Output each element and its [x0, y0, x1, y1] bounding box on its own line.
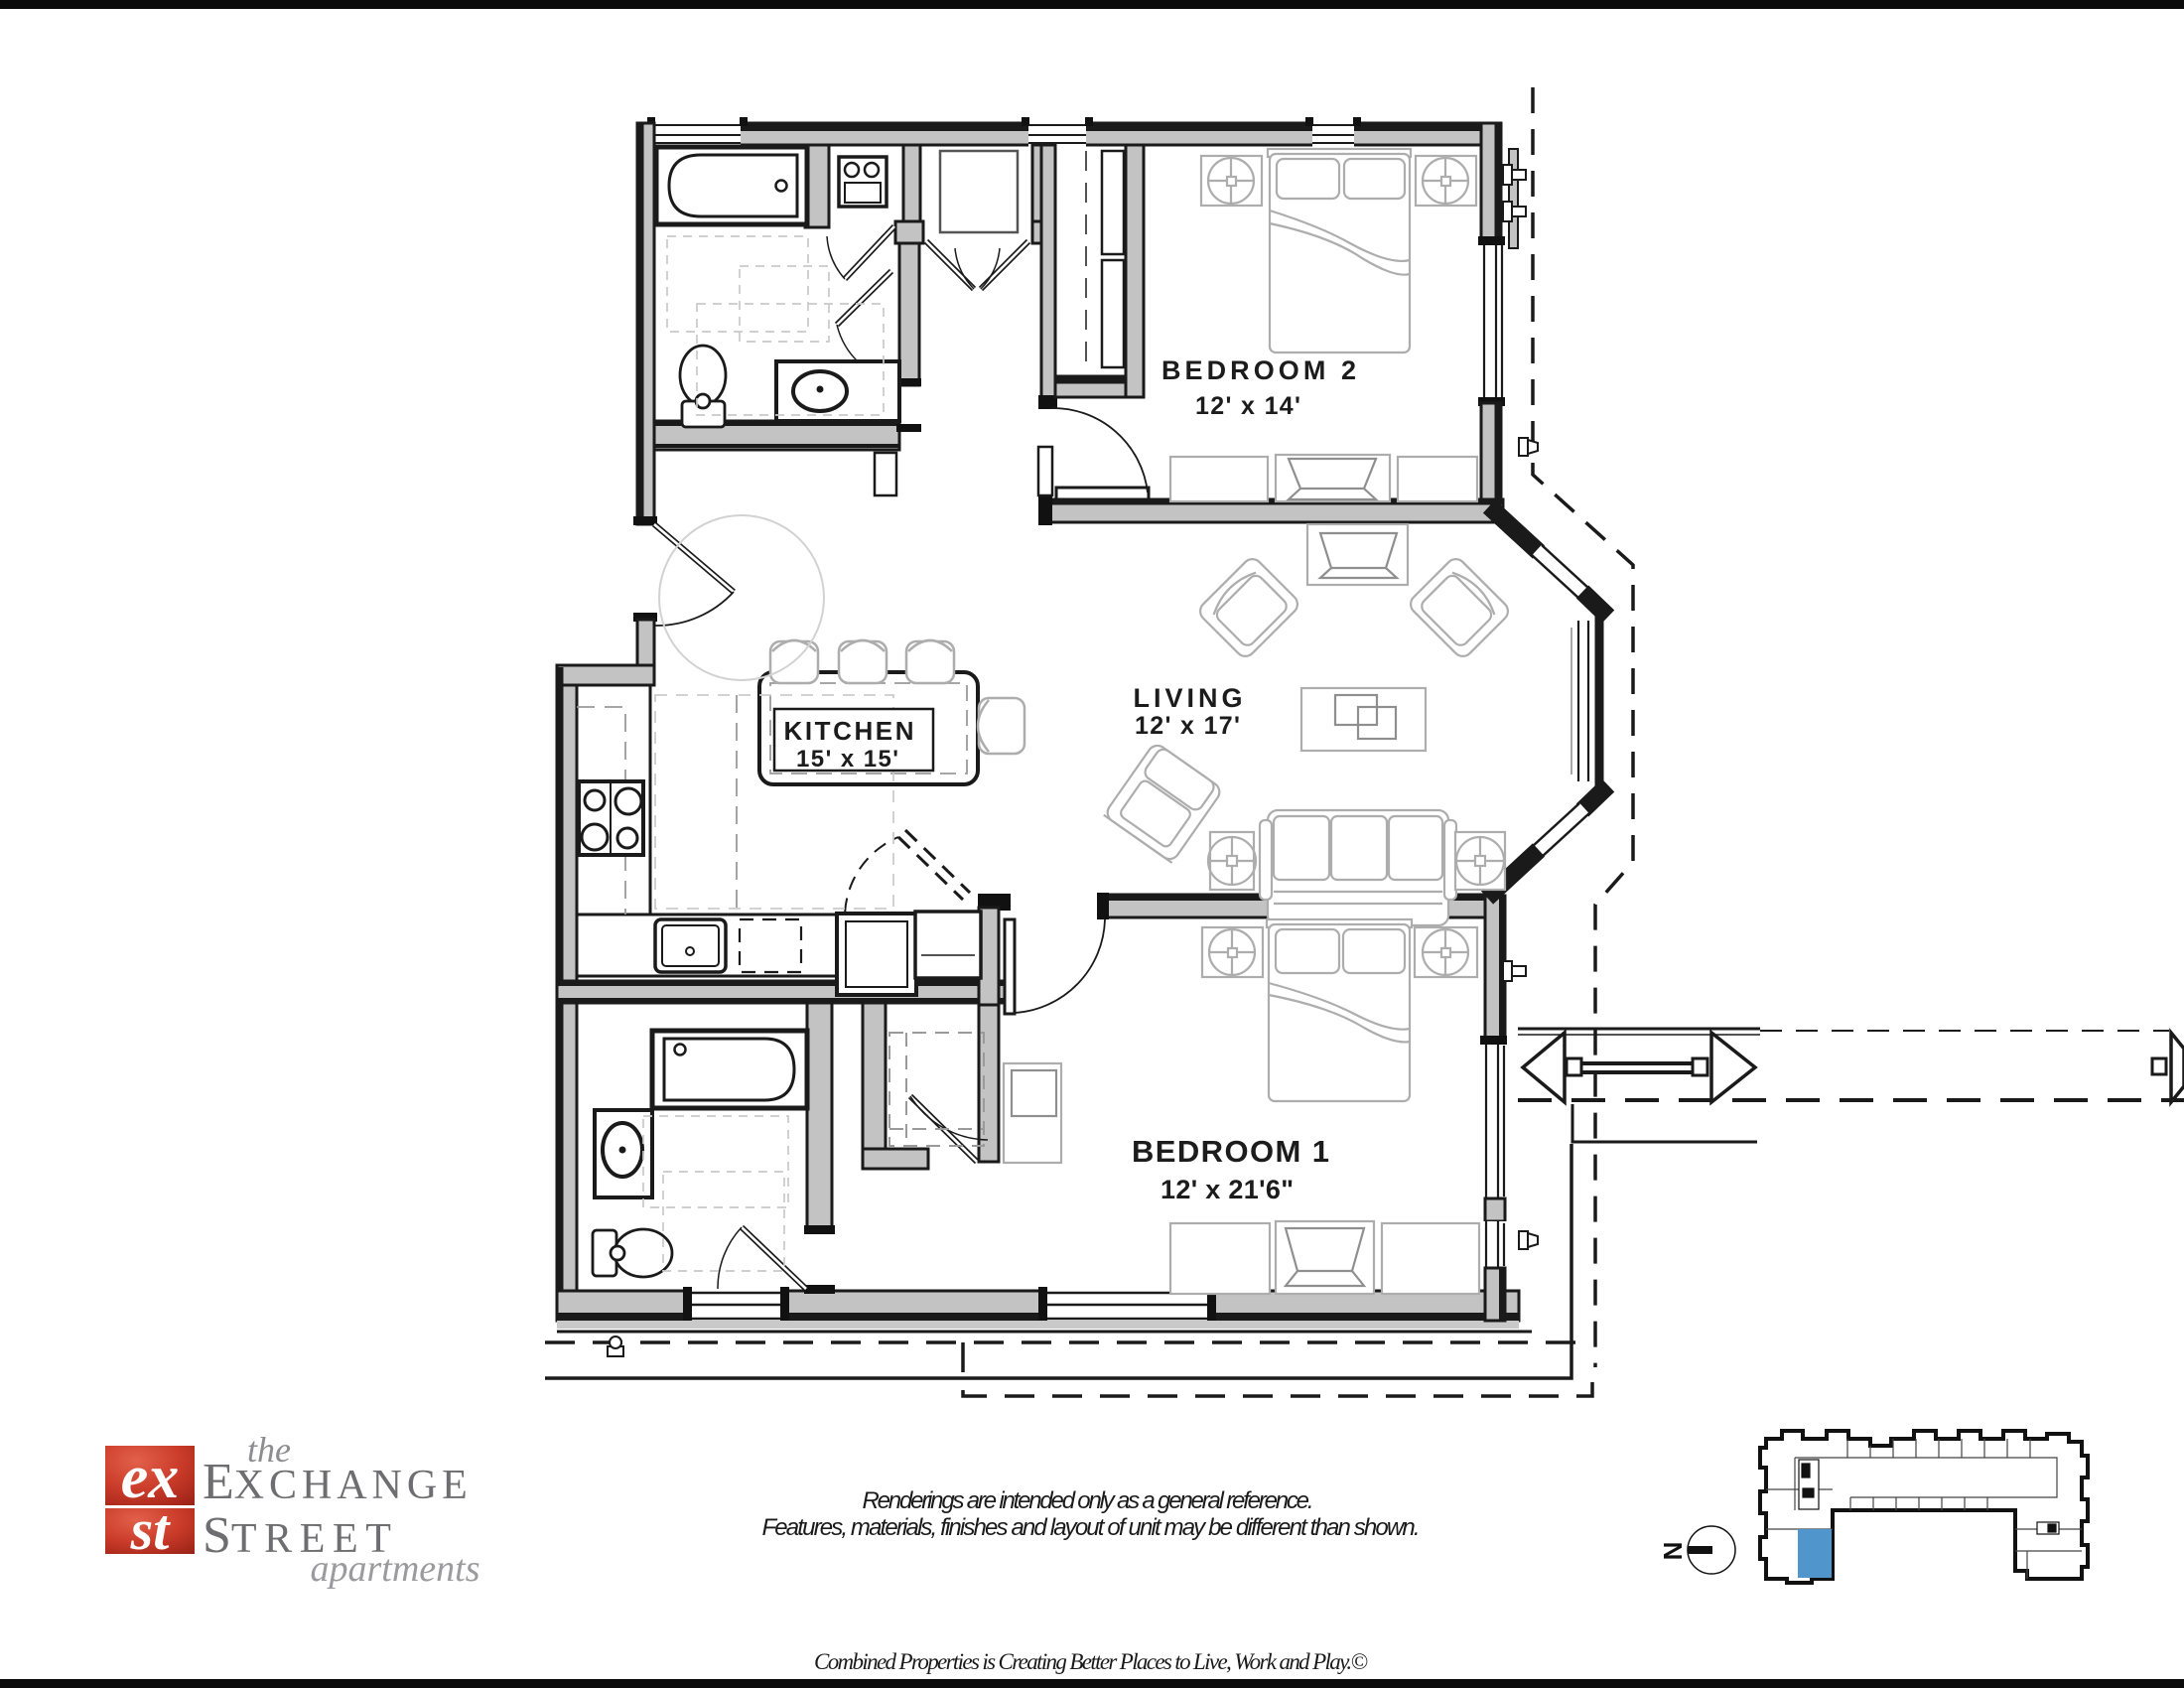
svg-text:N: N: [1658, 1542, 1688, 1561]
svg-text:15' x 15': 15' x 15': [796, 746, 903, 773]
svg-text:Renderings are intended only a: Renderings are intended only as a genera…: [863, 1487, 1314, 1514]
svg-text:12' x 17': 12' x 17': [1135, 712, 1246, 740]
svg-text:BEDROOM 1: BEDROOM 1: [1132, 1134, 1338, 1169]
svg-text:BEDROOM 2: BEDROOM 2: [1161, 355, 1364, 385]
svg-text:LIVING: LIVING: [1134, 683, 1248, 713]
svg-text:st: st: [130, 1497, 172, 1562]
svg-text:12' x 21'6": 12' x 21'6": [1160, 1175, 1299, 1204]
svg-text:KITCHEN: KITCHEN: [784, 716, 920, 746]
svg-text:Features, materials, finishes: Features, materials, finishes and layout…: [762, 1514, 1421, 1541]
svg-text:EXCHANGE: EXCHANGE: [203, 1454, 470, 1510]
svg-text:apartments: apartments: [311, 1548, 480, 1590]
svg-text:12' x 14': 12' x 14': [1195, 392, 1306, 420]
svg-text:Combined Properties is Creatin: Combined Properties is Creating Better P…: [814, 1649, 1368, 1674]
